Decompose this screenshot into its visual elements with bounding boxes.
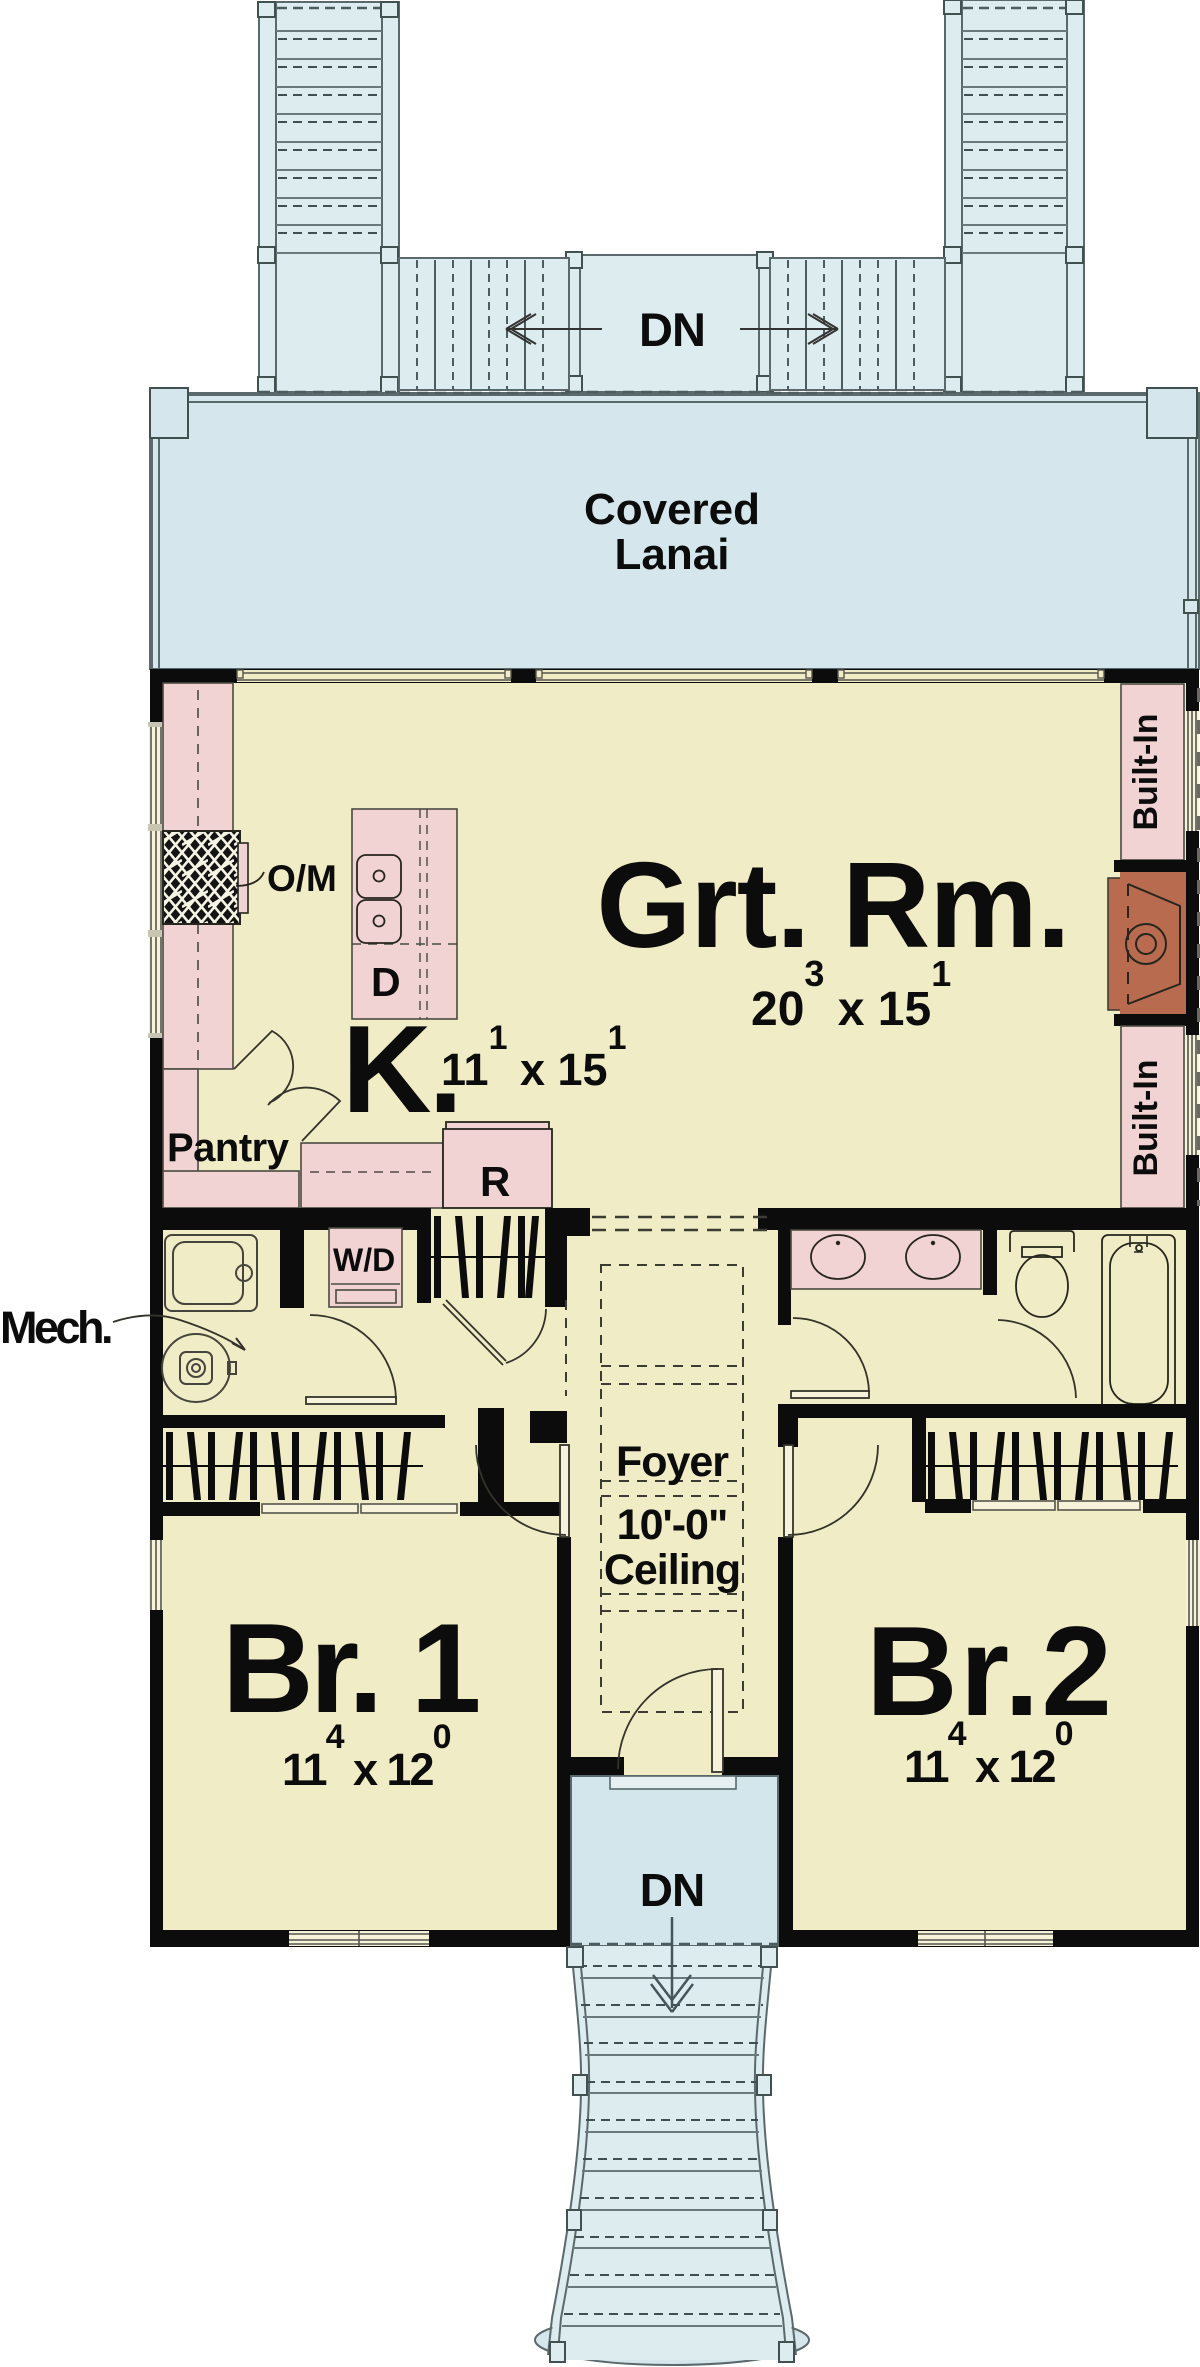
svg-text:Br.2: Br.2 [866, 1600, 1114, 1742]
svg-text:Ceiling: Ceiling [604, 1546, 740, 1594]
svg-text:Built-In: Built-In [1127, 1059, 1165, 1176]
svg-text:Pantry: Pantry [167, 1126, 290, 1170]
svg-text:Foyer: Foyer [616, 1438, 729, 1486]
svg-text:Lanai: Lanai [615, 530, 730, 579]
svg-text:W/D: W/D [333, 1242, 395, 1278]
svg-text:Mech.: Mech. [0, 1302, 111, 1353]
svg-text:DN: DN [640, 1864, 704, 1916]
svg-text:R: R [480, 1158, 510, 1205]
svg-text:Covered: Covered [584, 485, 760, 534]
svg-text:D: D [371, 959, 401, 1005]
svg-text:DN: DN [639, 303, 705, 356]
svg-text:Grt. Rm.: Grt. Rm. [596, 837, 1069, 973]
svg-text:Built-In: Built-In [1127, 713, 1165, 830]
svg-text:O/M: O/M [267, 858, 337, 899]
svg-text:10'-0": 10'-0" [617, 1501, 728, 1549]
